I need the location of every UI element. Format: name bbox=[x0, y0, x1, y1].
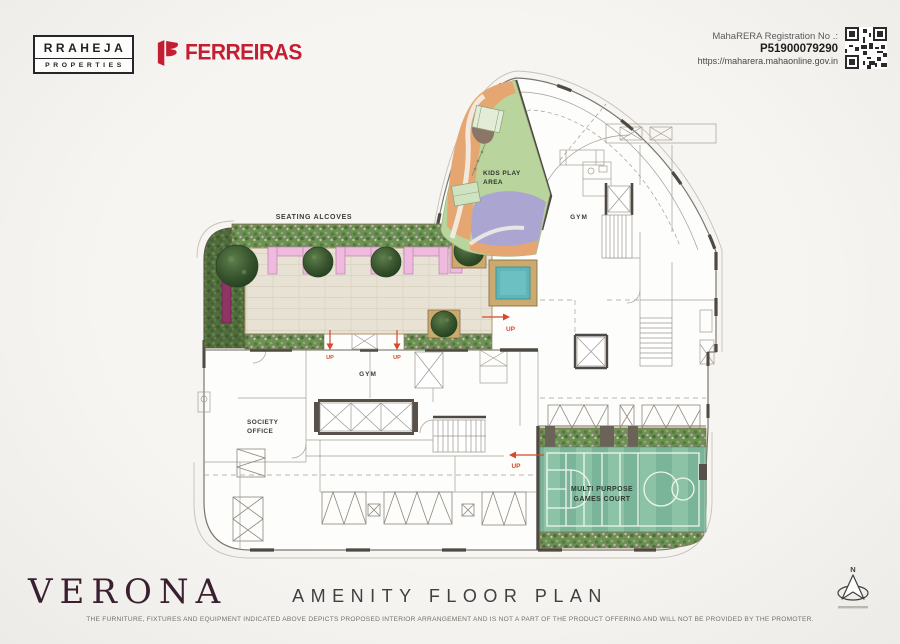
court-top-hedge bbox=[540, 428, 706, 447]
svg-text:UP: UP bbox=[326, 355, 334, 361]
games-court-label-line1: MULTI PURPOSE bbox=[571, 486, 633, 493]
svg-text:UP: UP bbox=[506, 326, 516, 333]
seating-alcoves-label: SEATING ALCOVES bbox=[276, 214, 353, 221]
svg-text:UP: UP bbox=[393, 355, 401, 361]
terrace-bottom-hedge-left bbox=[245, 334, 324, 349]
north-label: N bbox=[850, 565, 855, 574]
page-title: AMENITY FLOOR PLAN bbox=[292, 586, 608, 607]
water-feature bbox=[489, 260, 537, 306]
svg-text:UP: UP bbox=[511, 463, 521, 470]
kids-play-label-line2: AREA bbox=[483, 179, 503, 186]
north-compass: N bbox=[838, 565, 868, 608]
terrace-top-hedge bbox=[232, 224, 455, 248]
compass-caption bbox=[838, 606, 868, 608]
gym-lower-label: GYM bbox=[359, 371, 377, 378]
gym-upper-label: GYM bbox=[570, 214, 588, 221]
seating-alcoves-terrace bbox=[204, 224, 492, 349]
society-office-label-line2: OFFICE bbox=[247, 428, 273, 435]
society-office-label-line1: SOCIETY bbox=[247, 419, 279, 426]
disclaimer-text: THE FURNITURE, FIXTURES AND EQUIPMENT IN… bbox=[86, 616, 814, 623]
purple-bench bbox=[222, 280, 231, 323]
project-name: VERONA bbox=[28, 572, 227, 612]
brochure-page: RRAHEJA PROPERTIES FERREIRAS MahaRERA Re… bbox=[0, 0, 900, 644]
games-court-label-line2: GAMES COURT bbox=[574, 496, 631, 503]
court-bottom-hedge bbox=[540, 532, 704, 548]
kids-play-label-line1: KIDS PLAY bbox=[483, 170, 521, 177]
floor-plan: SEATING ALCOVES KIDS PLAY AREA GYM GYM S… bbox=[0, 0, 900, 644]
play-equipment-2 bbox=[451, 182, 480, 206]
